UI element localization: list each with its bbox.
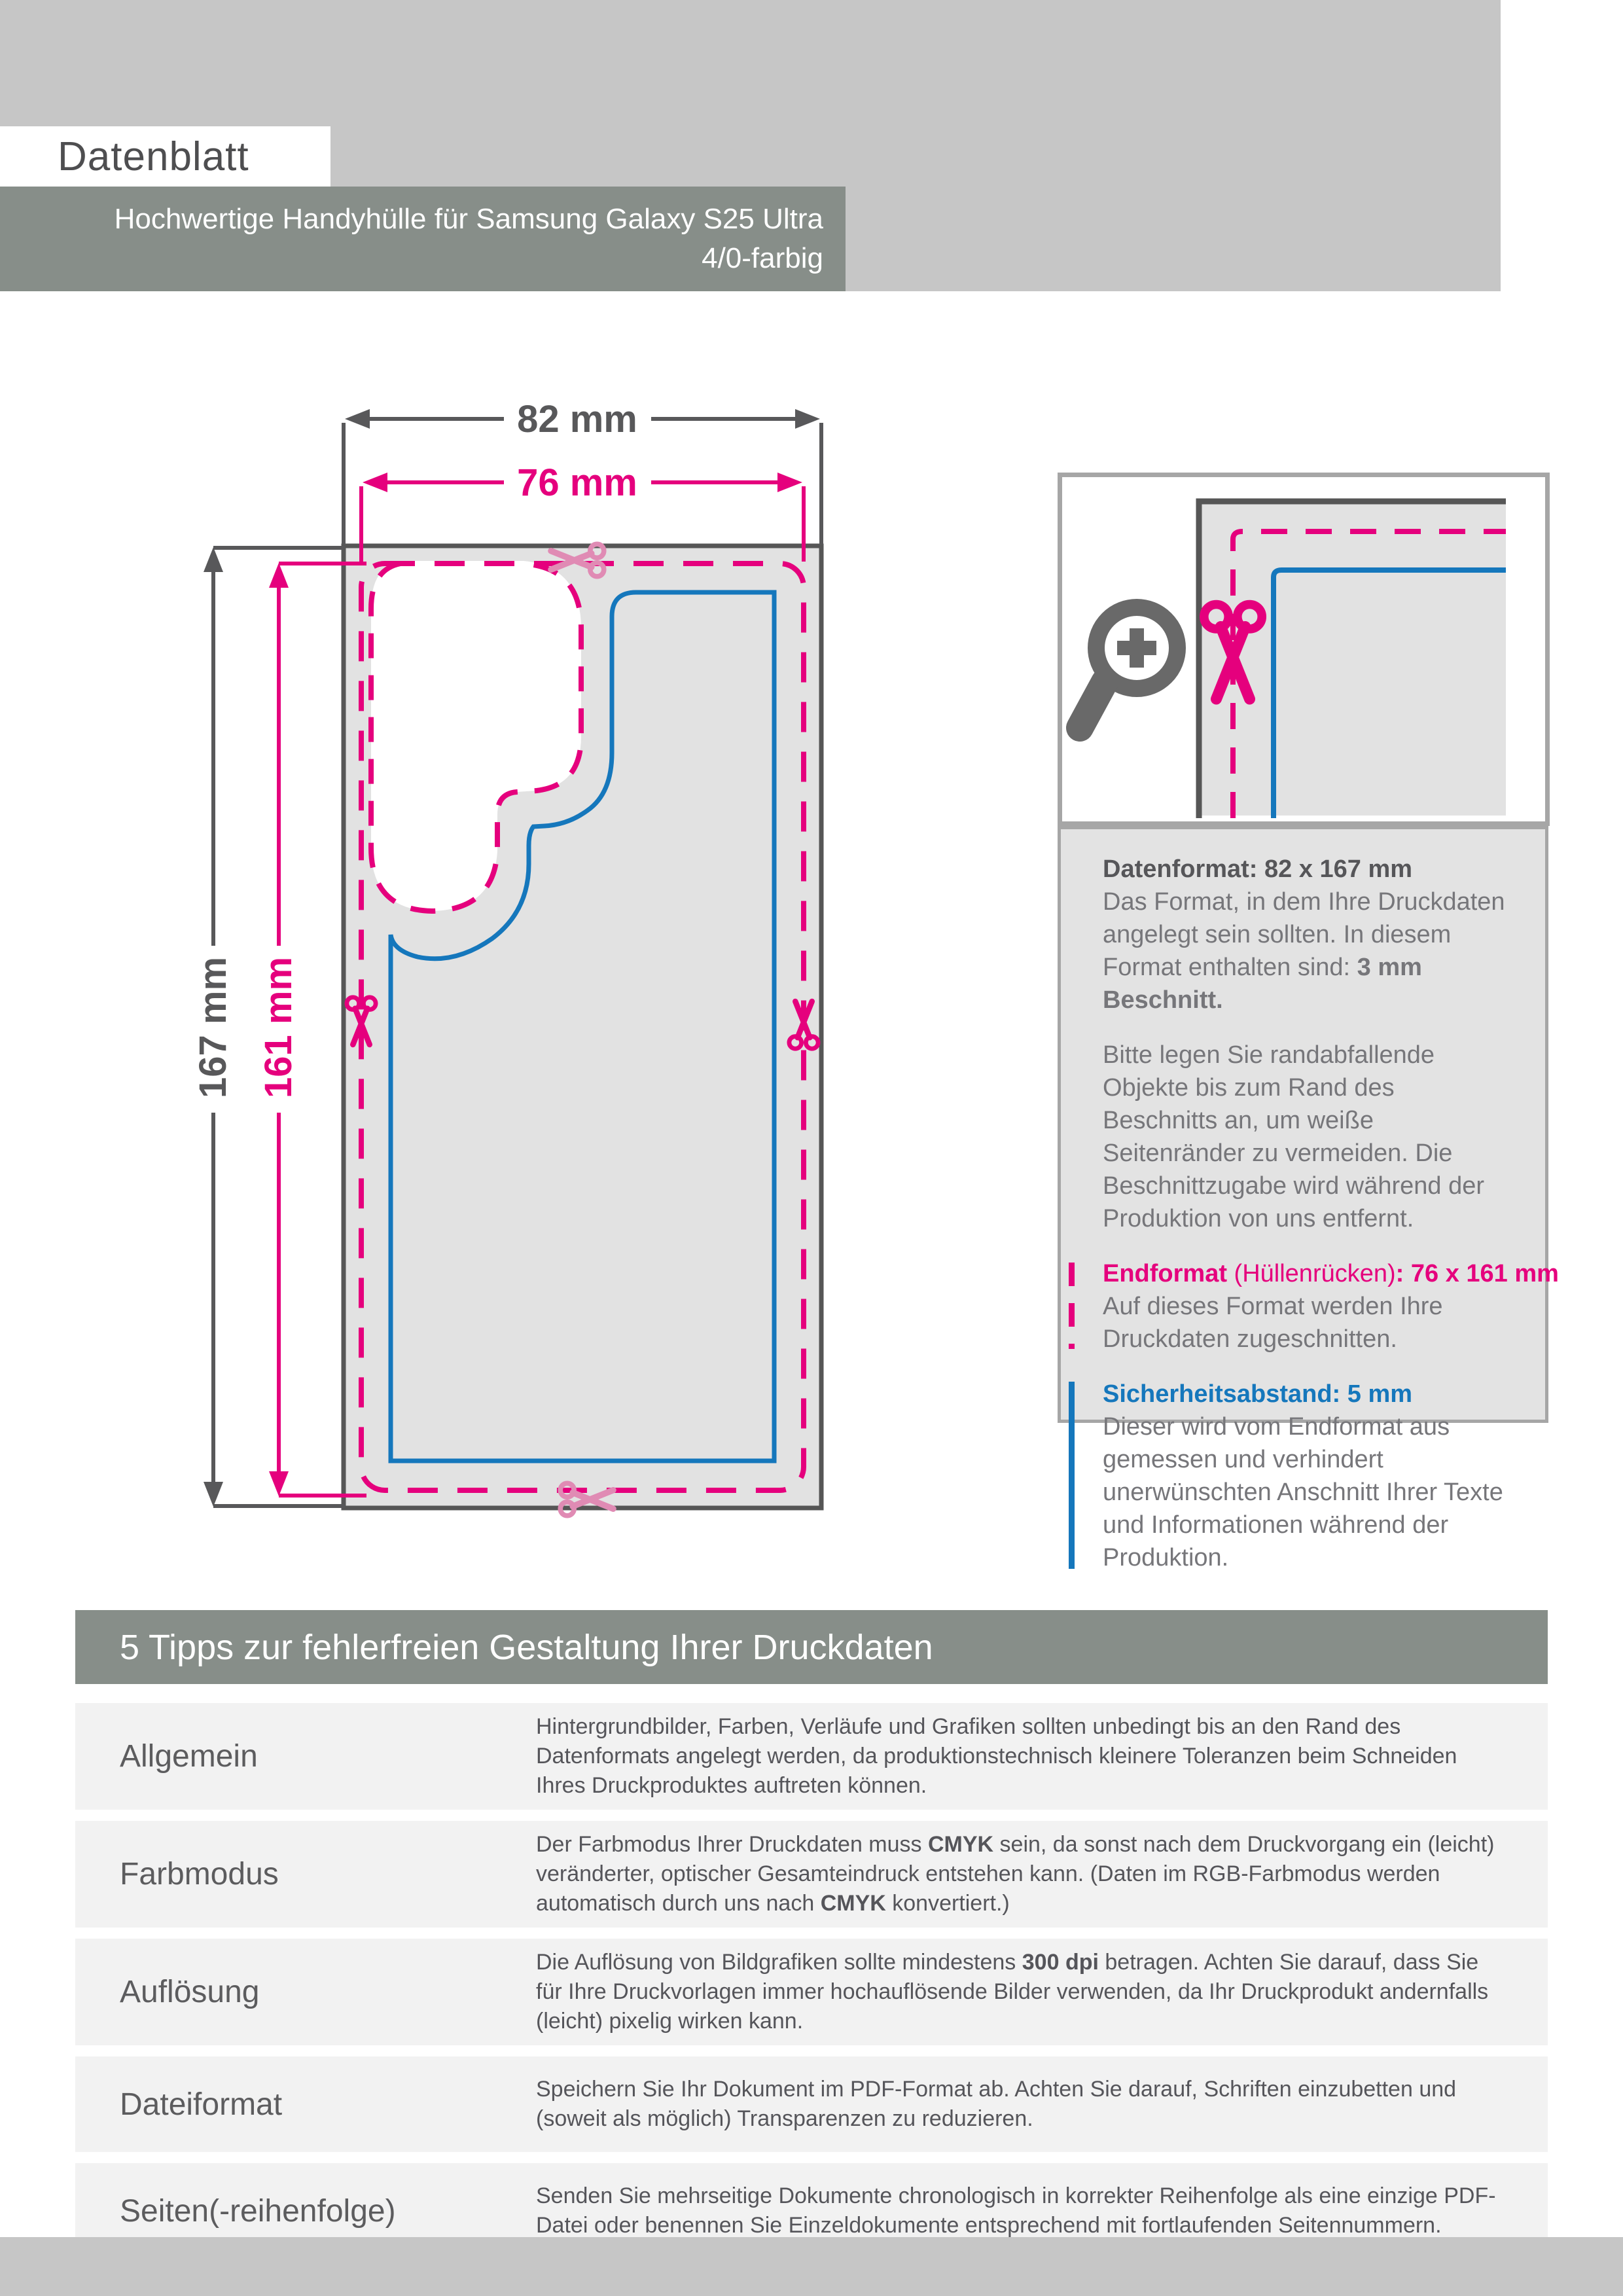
scissors-icon xyxy=(347,997,376,1045)
tip-row: AuflösungDie Auflösung von Bildgrafiken … xyxy=(75,1939,1548,2045)
tip-row-label: Farbmodus xyxy=(75,1856,536,1892)
camera-cutout-cut-line xyxy=(371,564,581,911)
product-name: Hochwertige Handyhülle für Samsung Galax… xyxy=(115,203,823,236)
page-title: Datenblatt xyxy=(58,134,249,180)
dimension-outer-height: 167 mm xyxy=(192,547,345,1507)
footer-band xyxy=(0,2237,1623,2296)
info-text: Sicherheitsabstand: 5 mm xyxy=(1103,1378,1515,1410)
tips-header-title: 5 Tipps zur fehlerfreien Gestaltung Ihre… xyxy=(120,1627,933,1668)
info-text: Dieser wird vom Endformat aus gemessen u… xyxy=(1103,1410,1515,1574)
bleed-area xyxy=(344,546,821,1508)
scissors-icon xyxy=(789,1001,818,1049)
tip-row-text: Speichern Sie Ihr Dokument im PDF-Format… xyxy=(536,2075,1548,2134)
info-panel-content: Datenformat: 82 x 167 mmDas Format, in d… xyxy=(1103,853,1515,1574)
info-group: Endformat (Hüllenrücken): 76 x 161 mmAuf… xyxy=(1103,1257,1515,1355)
tip-row: AllgemeinHintergrundbilder, Farben, Verl… xyxy=(75,1703,1548,1810)
info-panel: Datenformat: 82 x 167 mmDas Format, in d… xyxy=(1058,826,1548,1423)
corner-zoom-box xyxy=(1058,473,1550,826)
tip-row-label: Dateiformat xyxy=(75,2087,536,2123)
tip-row-text: Senden Sie mehrseitige Dokumente chronol… xyxy=(536,2181,1548,2240)
tip-row-label: Allgemein xyxy=(75,1738,536,1774)
tip-row-text: Die Auflösung von Bildgrafiken sollte mi… xyxy=(536,1948,1548,2036)
tip-row: FarbmodusDer Farbmodus Ihrer Druckdaten … xyxy=(75,1821,1548,1928)
tip-row: DateiformatSpeichern Sie Ihr Dokument im… xyxy=(75,2056,1548,2152)
inner-height-label: 161 mm xyxy=(257,957,300,1098)
info-text: Bitte legen Sie randabfallende Objekte b… xyxy=(1103,1039,1515,1235)
info-text: Das Format, in dem Ihre Druckdaten angel… xyxy=(1103,886,1515,1016)
camera-cutout xyxy=(371,561,581,911)
info-text: Datenformat: 82 x 167 mm xyxy=(1103,853,1515,886)
info-group: Datenformat: 82 x 167 mmDas Format, in d… xyxy=(1103,853,1515,1235)
scissors-icon xyxy=(551,544,604,576)
outer-width-label: 82 mm xyxy=(517,398,637,440)
tips-rows: AllgemeinHintergrundbilder, Farben, Verl… xyxy=(75,1703,1548,2270)
tip-row-text: Hintergrundbilder, Farben, Verläufe und … xyxy=(536,1712,1548,1801)
page-title-box: Datenblatt xyxy=(0,126,330,187)
scissors-icon xyxy=(560,1483,613,1515)
datasheet-page: Hochwertige Handyhülle für Samsung Galax… xyxy=(0,0,1623,2296)
dimension-outer-width: 82 mm xyxy=(344,398,821,545)
tip-row-text: Der Farbmodus Ihrer Druckdaten muss CMYK… xyxy=(536,1830,1548,1918)
info-text: Auf dieses Format werden Ihre Druckdaten… xyxy=(1103,1290,1515,1355)
cut-line xyxy=(361,564,804,1490)
tips-header: 5 Tipps zur fehlerfreien Gestaltung Ihre… xyxy=(75,1610,1548,1684)
dimension-inner-height: 161 mm xyxy=(257,563,366,1496)
inner-width-label: 76 mm xyxy=(517,461,637,504)
dimension-inner-width: 76 mm xyxy=(361,461,804,562)
safety-line xyxy=(391,592,774,1461)
product-subtitle-band: Hochwertige Handyhülle für Samsung Galax… xyxy=(0,187,846,291)
info-group: Sicherheitsabstand: 5 mmDieser wird vom … xyxy=(1103,1378,1515,1574)
tip-row-label: Seiten(-reihenfolge) xyxy=(75,2193,536,2229)
outer-height-label: 167 mm xyxy=(192,957,234,1098)
color-mode-label: 4/0-farbig xyxy=(702,242,823,275)
info-text: Endformat (Hüllenrücken): 76 x 161 mm xyxy=(1103,1257,1515,1290)
tip-row-label: Auflösung xyxy=(75,1974,536,2010)
